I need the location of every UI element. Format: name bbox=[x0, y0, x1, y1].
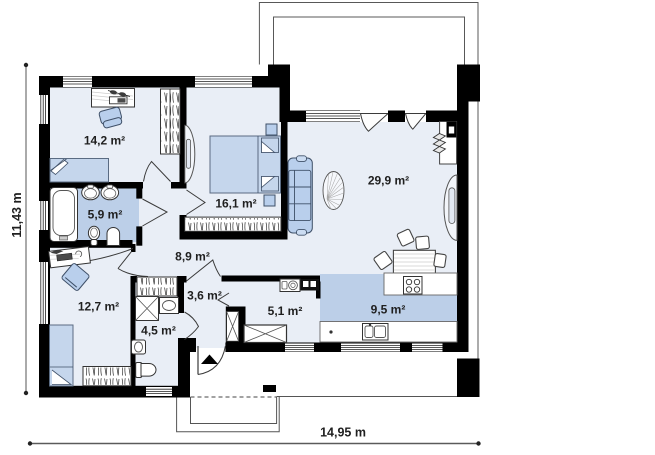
svg-text:11,43 m: 11,43 m bbox=[10, 192, 24, 237]
svg-text:4,5 m²: 4,5 m² bbox=[141, 324, 176, 338]
svg-text:14,2 m²: 14,2 m² bbox=[84, 134, 125, 148]
svg-text:16,1 m²: 16,1 m² bbox=[215, 197, 256, 211]
svg-text:5,1 m²: 5,1 m² bbox=[268, 304, 303, 318]
svg-text:12,7 m²: 12,7 m² bbox=[78, 300, 119, 314]
svg-text:3,6 m²: 3,6 m² bbox=[187, 289, 222, 303]
svg-text:8,9 m²: 8,9 m² bbox=[175, 250, 210, 264]
svg-text:29,9 m²: 29,9 m² bbox=[368, 174, 409, 188]
svg-text:9,5 m²: 9,5 m² bbox=[371, 303, 406, 317]
svg-text:14,95 m: 14,95 m bbox=[320, 426, 366, 440]
svg-text:5,9 m²: 5,9 m² bbox=[88, 208, 123, 222]
